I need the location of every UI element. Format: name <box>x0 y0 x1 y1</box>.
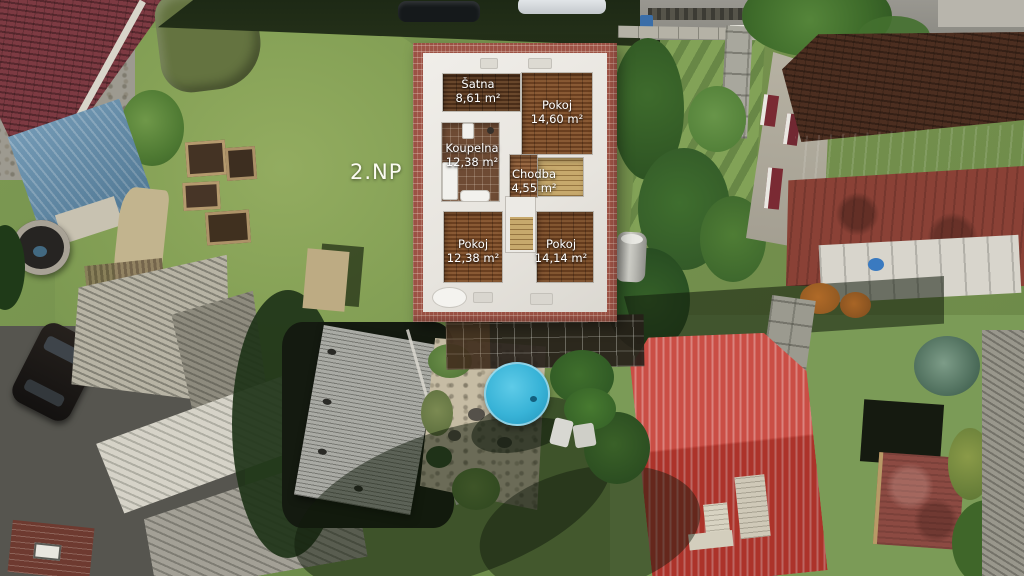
neighbour-roof-dark-brown <box>782 32 1024 142</box>
bathroom-door-opening <box>462 123 474 139</box>
floor-level-label: 2.NP <box>350 160 402 184</box>
parking-slab-top-right <box>938 0 1024 27</box>
terrace-table <box>473 292 493 303</box>
autumn-shrub <box>840 292 871 318</box>
corner-house-window <box>33 542 62 561</box>
room-name: Pokoj <box>535 237 587 251</box>
bush-on-lawn-east <box>688 86 746 152</box>
aerial-photo: Šatna 8,61 m² Pokoj 14,60 m² Koupelna 12… <box>0 0 1024 576</box>
car-rear-window <box>23 378 66 408</box>
conservatory-wood-glimpse <box>446 317 491 370</box>
room-area: 4,55 m² <box>511 181 556 195</box>
gray-corrugated-right-edge <box>982 330 1024 576</box>
room-area: 14,60 m² <box>531 112 583 126</box>
room-label-koupelna: Koupelna 12,38 m² <box>445 141 498 169</box>
conservatory-glass-roof <box>446 314 645 369</box>
room-area: 12,38 m² <box>445 155 498 169</box>
raised-bed <box>205 210 251 246</box>
room-name: Koupelna <box>445 141 498 155</box>
room-label-satna: Šatna 8,61 m² <box>455 77 500 105</box>
roof-vent <box>322 398 332 405</box>
room-area: 8,61 m² <box>455 91 500 105</box>
dark-car <box>398 1 480 22</box>
white-car <box>518 0 606 14</box>
room-name: Chodba <box>511 167 556 181</box>
pool-toy-blue <box>868 258 884 271</box>
room-label-chodba: Chodba 4,55 m² <box>511 167 556 195</box>
swimming-pool <box>484 362 550 426</box>
room-area: 12,38 m² <box>447 251 499 265</box>
chimney-cap <box>621 233 643 244</box>
roof-window <box>528 58 552 69</box>
roof-skylight-panel <box>734 474 770 539</box>
room-label-pokoj-3: Pokoj 14,14 m² <box>535 237 587 265</box>
white-garden-furniture <box>572 422 596 448</box>
raised-bed <box>225 146 257 181</box>
raised-bed <box>182 181 220 211</box>
pool-drain-dot <box>530 396 537 402</box>
room-name: Šatna <box>455 77 500 91</box>
bathtub <box>460 190 490 202</box>
brick-house-corner <box>8 520 95 576</box>
roof-vent <box>327 348 337 355</box>
room-area: 14,14 m² <box>535 251 587 265</box>
room-name: Pokoj <box>531 98 583 112</box>
floorplan-overlay: Šatna 8,61 m² Pokoj 14,60 m² Koupelna 12… <box>413 43 617 322</box>
staircase-lower <box>510 217 533 250</box>
roof-window <box>480 58 498 69</box>
roof-vent <box>317 448 327 455</box>
toilet <box>487 127 494 134</box>
sandbox-pergola <box>302 248 349 311</box>
raised-bed <box>185 140 227 178</box>
room-label-pokoj-2: Pokoj 12,38 m² <box>447 237 499 265</box>
room-label-pokoj-1: Pokoj 14,60 m² <box>531 98 583 126</box>
room-name: Pokoj <box>447 237 499 251</box>
terrace-oval-tub <box>433 288 466 307</box>
silver-chimney-tank <box>615 231 648 283</box>
blue-spruce <box>914 336 980 396</box>
terrace-table <box>530 293 553 305</box>
tub-water-glint <box>33 246 47 257</box>
